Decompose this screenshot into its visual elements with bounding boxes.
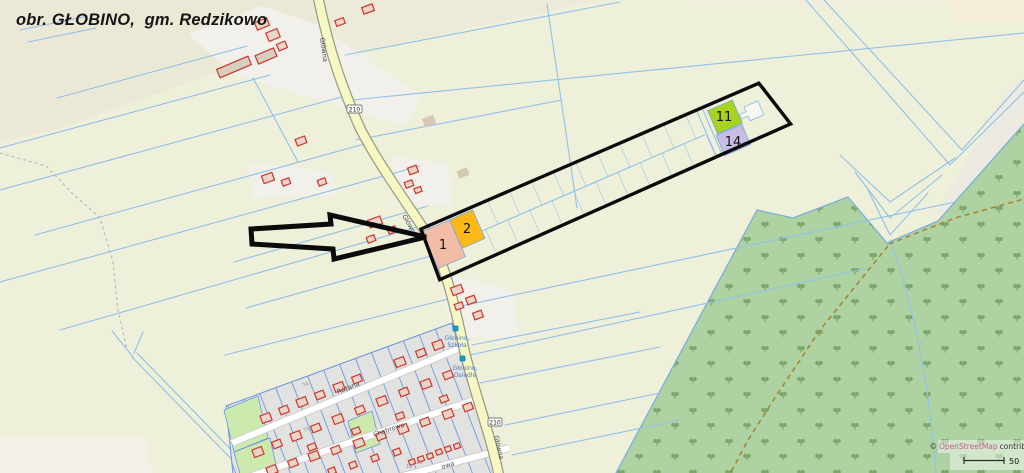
plot-number: 16	[416, 460, 422, 466]
scale-value: 50	[1009, 457, 1019, 466]
bus-stop-name-2-line1: Głobino,	[453, 365, 478, 372]
parcel-14-label: 14	[725, 135, 742, 150]
attribution: ©OpenStreetMapcontrib	[930, 442, 1024, 451]
parcel-2-label: 2	[463, 222, 471, 237]
svg-text:210: 210	[489, 419, 501, 426]
plot-number: 18	[406, 464, 412, 470]
bus-stop-name-1-line2: Szkoła	[447, 342, 467, 349]
parcel-1-label: 1	[439, 238, 447, 253]
parcel-11-label: 11	[716, 110, 733, 125]
svg-text:210: 210	[349, 106, 361, 113]
bus-stop-icon[interactable]	[460, 356, 465, 361]
map-viewport[interactable]: 1 2 11 14 Główna Główna Główna 210 210 R…	[0, 0, 1024, 473]
bus-stop-icon[interactable]	[453, 326, 458, 331]
map-title: obr. GŁOBINO, gm. Redzikowo	[16, 11, 267, 29]
map-canvas[interactable]: 1 2 11 14 Główna Główna Główna 210 210 R…	[0, 0, 1024, 473]
bus-stop-name-2-line2: Osiedle	[454, 372, 477, 379]
bus-stop-name-1-line1: Głobino,	[445, 335, 470, 342]
route-shield-210-top: 210	[347, 105, 362, 113]
route-shield-210-bottom: 210	[488, 418, 502, 426]
osm-link[interactable]: OpenStreetMap	[939, 442, 998, 451]
